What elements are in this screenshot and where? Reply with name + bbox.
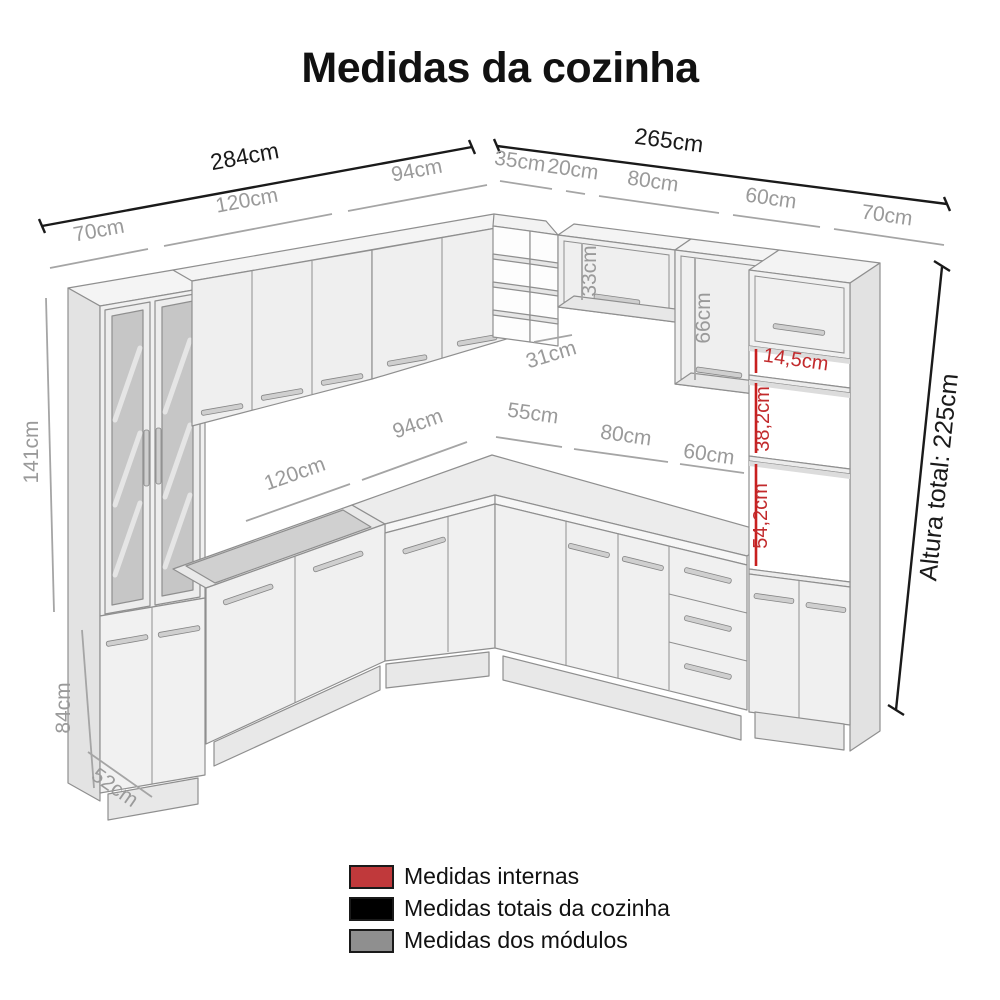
label-right-module-60: 60cm xyxy=(744,184,798,214)
wall-cabinet-120 xyxy=(192,250,372,426)
label-internal-54-2: 54,2cm xyxy=(750,483,772,549)
legend-label-internal: Medidas internas xyxy=(404,863,579,889)
base-run xyxy=(173,455,777,766)
label-left-module-94: 94cm xyxy=(389,155,444,187)
legend-swatch-internal xyxy=(350,866,393,888)
label-left-total: 284cm xyxy=(208,137,281,175)
glass-door-left xyxy=(105,302,150,614)
label-84: 84cm xyxy=(52,682,75,733)
legend-swatch-total xyxy=(350,898,393,920)
corner-shelf-unit xyxy=(493,214,558,346)
legend-label-total: Medidas totais da cozinha xyxy=(404,895,670,921)
tall-door-handle-left xyxy=(144,430,149,486)
page-title: Medidas da cozinha xyxy=(301,44,700,92)
label-internal-38-2: 38,2cm xyxy=(752,386,774,452)
dim-tall-upper: 141cm xyxy=(20,298,54,612)
label-141: 141cm xyxy=(20,420,43,483)
tower-side xyxy=(850,263,880,751)
dim-counter-right: 55cm 80cm 60cm xyxy=(496,399,744,473)
label-counter-55: 55cm xyxy=(506,399,560,429)
label-right-module-80: 80cm xyxy=(626,167,680,197)
legend: Medidas internas Medidas totais da cozin… xyxy=(350,863,670,953)
label-counter-120: 120cm xyxy=(261,453,328,496)
diagram-canvas: Medidas da cozinha xyxy=(0,0,1000,1000)
label-total-height: Altura total: 225cm xyxy=(914,372,964,582)
legend-label-module: Medidas dos módulos xyxy=(404,927,628,953)
label-33: 33cm xyxy=(578,245,601,296)
label-counter-80: 80cm xyxy=(599,421,653,451)
label-counter-94: 94cm xyxy=(390,404,446,443)
left-wall-cabinets xyxy=(173,214,513,426)
dim-total-height: Altura total: 225cm xyxy=(888,261,964,715)
kitchen-measurements-diagram: Medidas da cozinha xyxy=(0,0,1000,1000)
tall-cabinet xyxy=(68,270,205,820)
dim-overwindow-height: 33cm xyxy=(578,243,601,300)
legend-swatch-module xyxy=(350,930,393,952)
label-left-module-120: 120cm xyxy=(214,184,280,218)
label-66: 66cm xyxy=(692,292,715,343)
label-right-total: 265cm xyxy=(633,123,705,158)
tall-door-handle-right xyxy=(156,428,161,484)
label-right-module-70: 70cm xyxy=(860,201,914,231)
